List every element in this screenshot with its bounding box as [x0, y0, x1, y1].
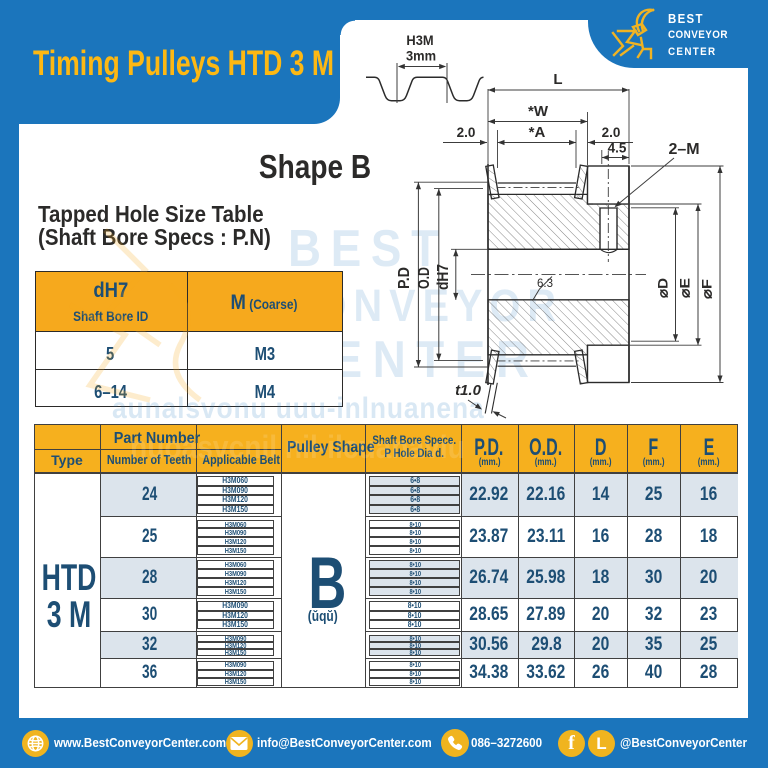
svg-text:2.0: 2.0 — [457, 125, 476, 140]
svg-text:2–M: 2–M — [668, 141, 699, 158]
svg-text:2.0: 2.0 — [602, 125, 621, 140]
svg-text:dH7: dH7 — [435, 264, 452, 290]
svg-text:⌀F: ⌀F — [699, 278, 715, 299]
svg-text:3mm: 3mm — [406, 48, 436, 64]
svg-text:P.D: P.D — [396, 267, 413, 289]
svg-text:*W: *W — [528, 103, 549, 120]
svg-text:4.5: 4.5 — [608, 141, 627, 156]
svg-text:t1.0: t1.0 — [455, 382, 482, 399]
svg-text:⌀D: ⌀D — [655, 278, 671, 298]
svg-text:*A: *A — [529, 124, 546, 141]
svg-text:L: L — [553, 71, 562, 88]
svg-text:H3M: H3M — [406, 33, 433, 49]
svg-text:O.D: O.D — [416, 267, 433, 289]
svg-text:⌀E: ⌀E — [677, 278, 693, 298]
